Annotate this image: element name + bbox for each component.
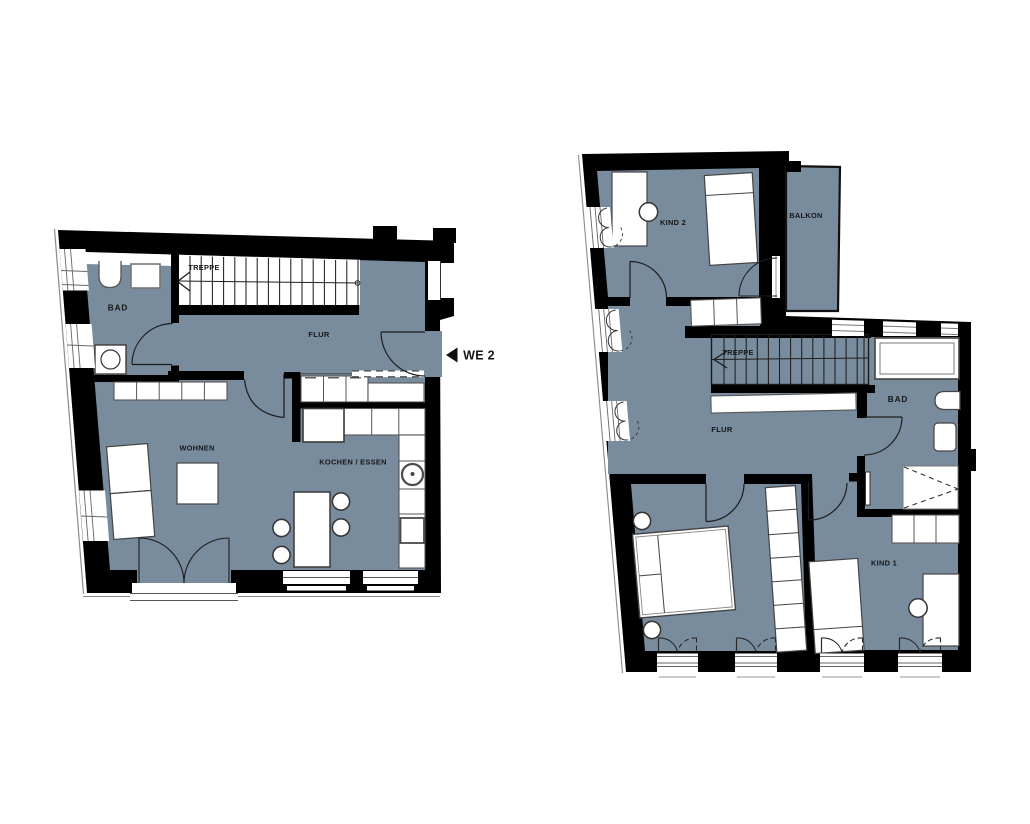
svg-text:WOHNEN: WOHNEN bbox=[179, 444, 214, 453]
svg-text:TREPPE: TREPPE bbox=[188, 263, 219, 272]
svg-text:KIND 1: KIND 1 bbox=[871, 559, 897, 568]
svg-text:TREPPE: TREPPE bbox=[722, 348, 753, 357]
svg-text:FLUR: FLUR bbox=[711, 425, 733, 434]
svg-text:KIND 2: KIND 2 bbox=[660, 218, 686, 227]
svg-text:BAD: BAD bbox=[108, 304, 128, 313]
svg-text:BAD: BAD bbox=[888, 395, 908, 404]
svg-text:FLUR: FLUR bbox=[308, 330, 330, 339]
svg-text:BALKON: BALKON bbox=[789, 211, 822, 220]
svg-text:WE 2: WE 2 bbox=[463, 349, 495, 363]
svg-text:KOCHEN / ESSEN: KOCHEN / ESSEN bbox=[319, 458, 386, 467]
